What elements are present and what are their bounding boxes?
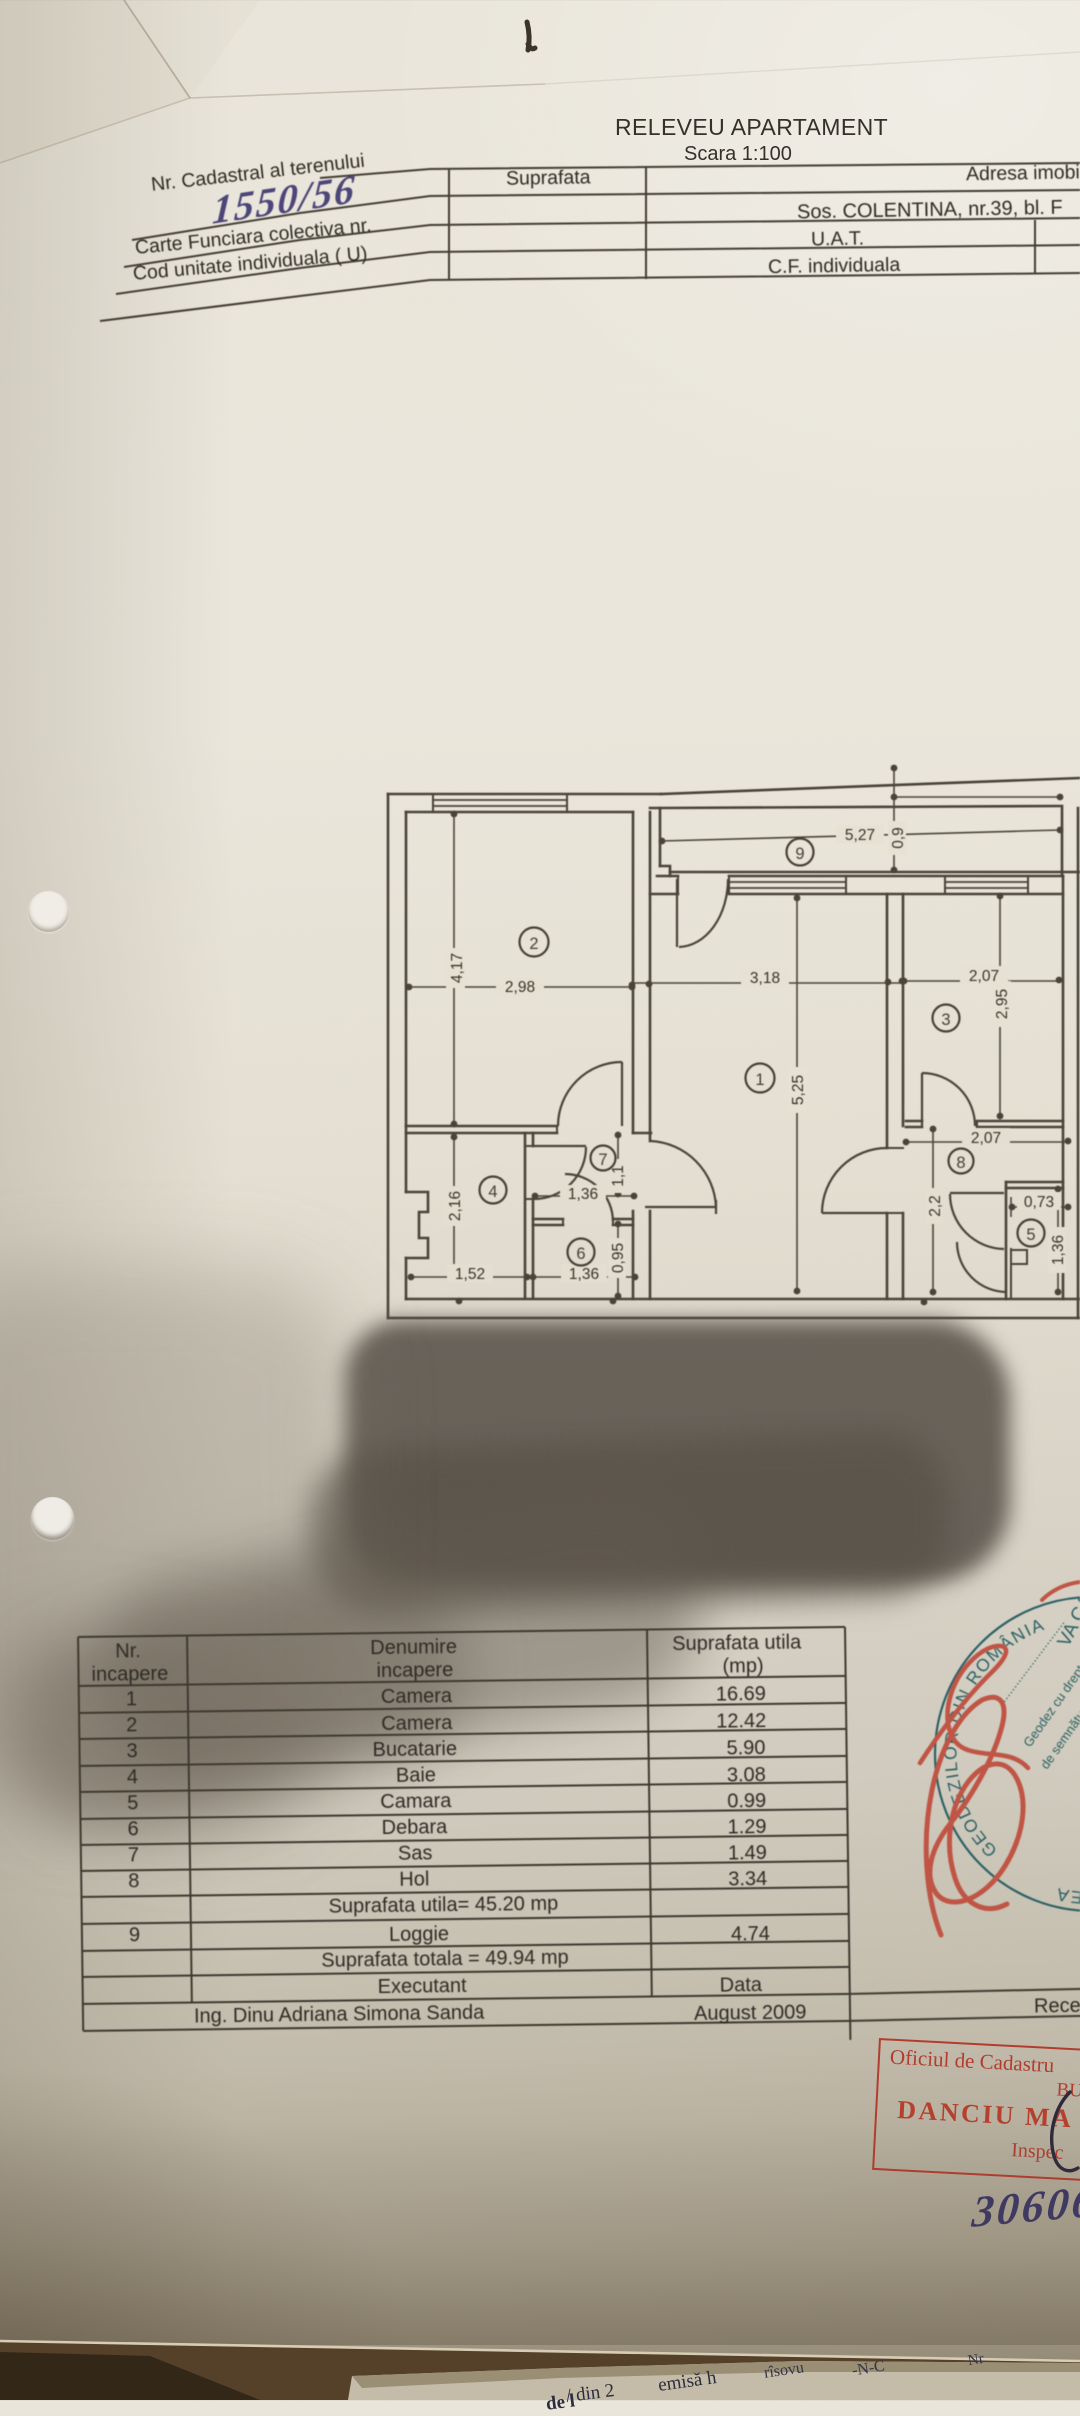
svg-text:UNIUNEA: UNIUNEA [1053, 1877, 1080, 1908]
